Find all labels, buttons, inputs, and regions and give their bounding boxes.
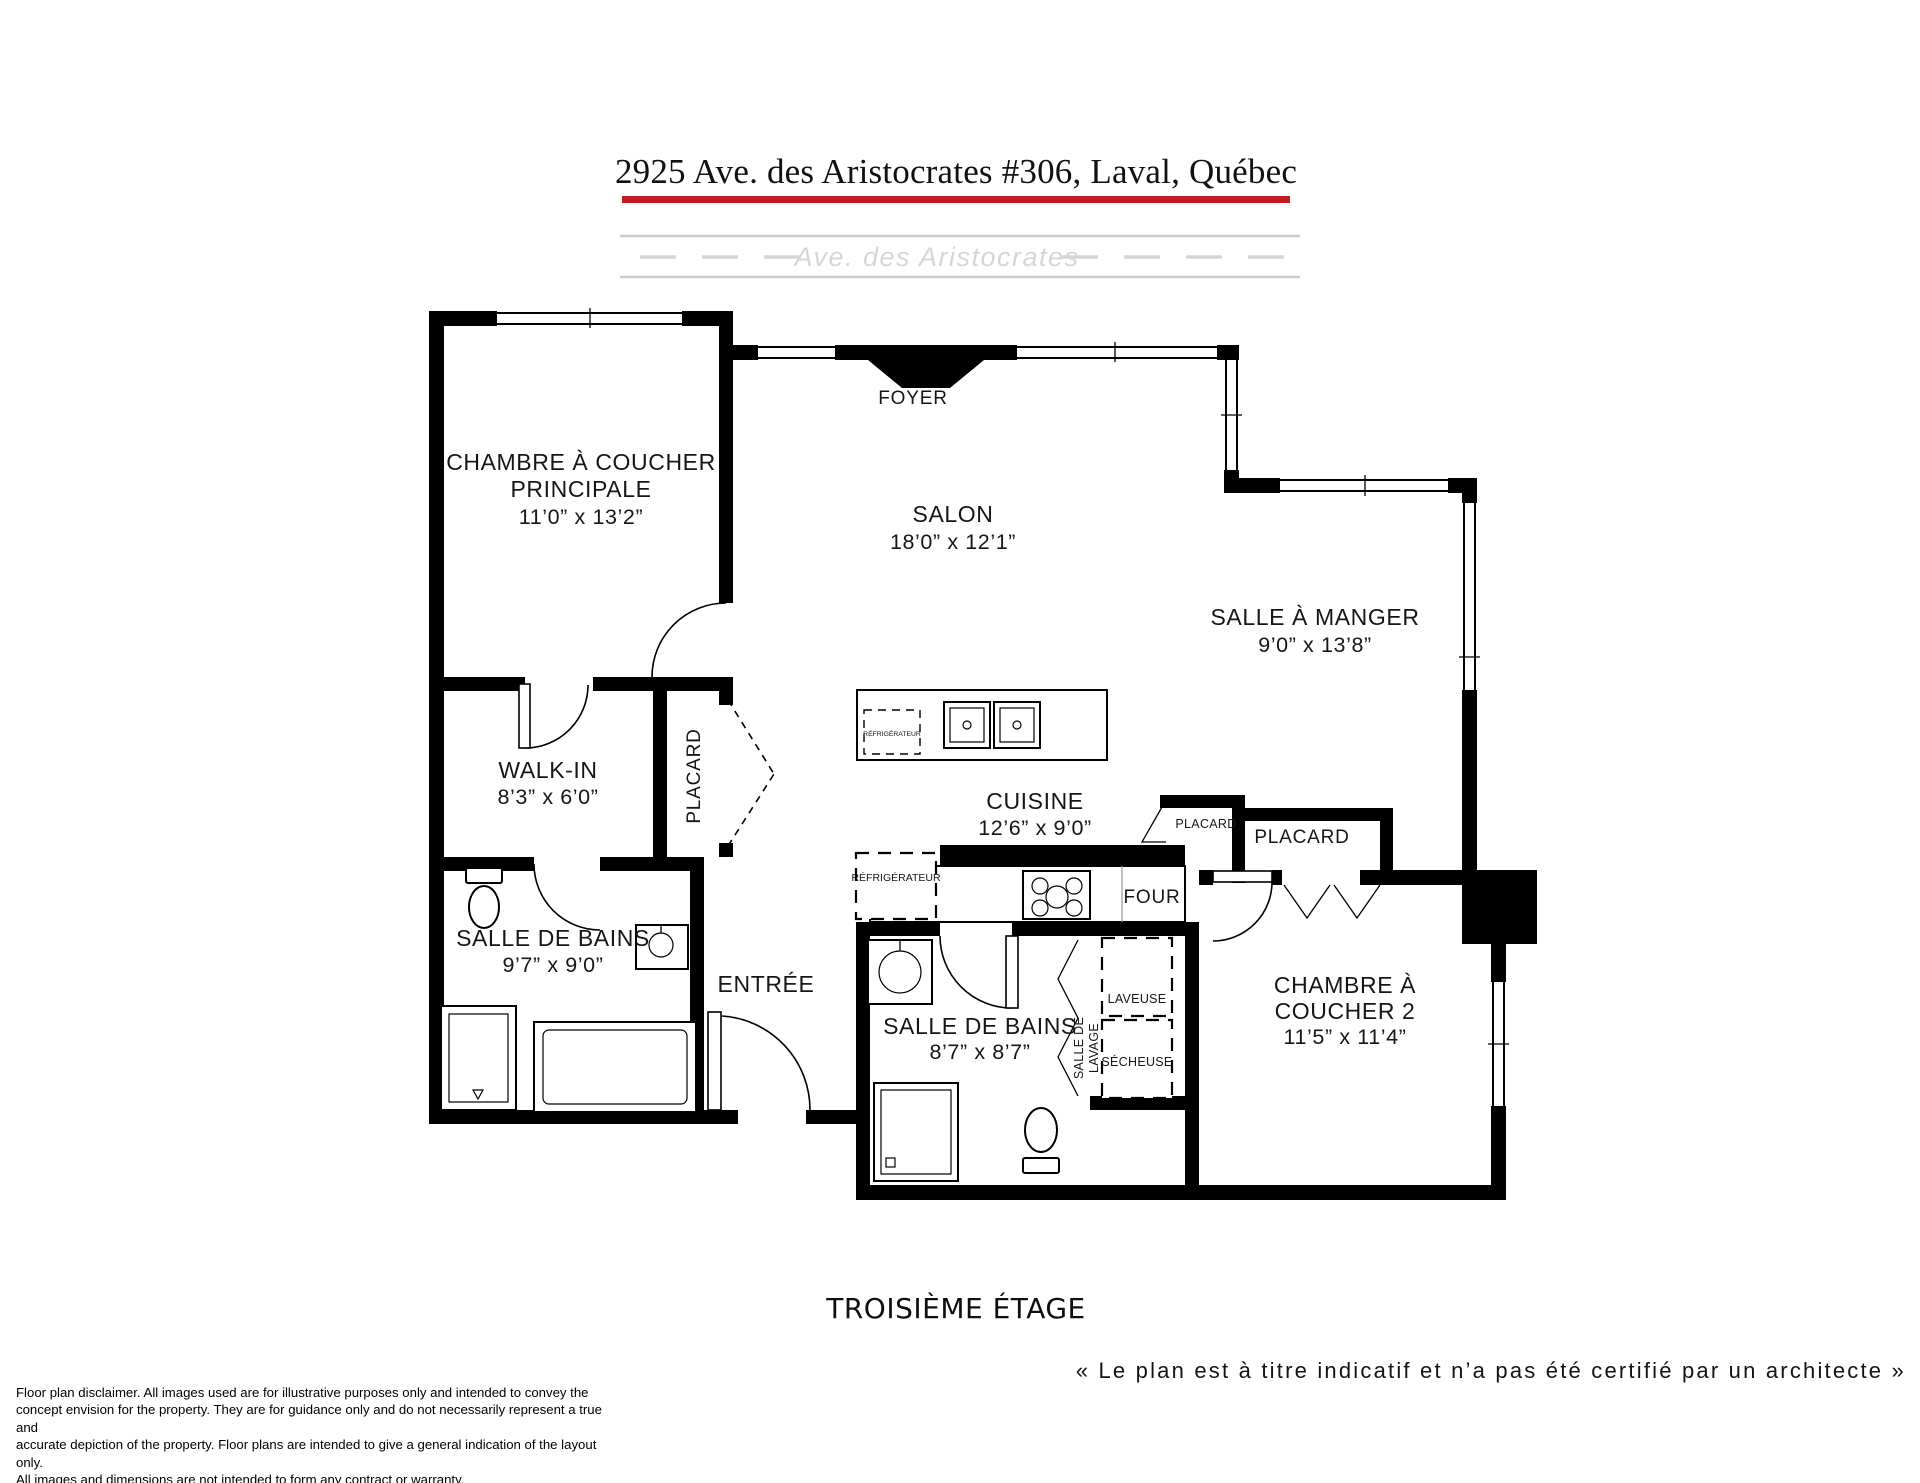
dryer-label: SÉCHEUSE [1101, 1054, 1172, 1069]
door-arc-entrance [722, 1016, 810, 1110]
label-entree: ENTRÉE [718, 971, 815, 997]
label-cuisine: CUISINE [986, 788, 1084, 814]
label-dining: SALLE À MANGER [1210, 604, 1419, 630]
disclaimer-line: Floor plan disclaimer. All images used a… [16, 1384, 616, 1401]
dims-walkin: 8’3” x 6’0” [498, 785, 599, 809]
oven-label: FOUR [1123, 887, 1180, 908]
shower-icon-bath1 [441, 1006, 516, 1110]
toilet-icon-bath2 [1023, 1108, 1059, 1173]
street-road: Ave. des Aristocrates [620, 236, 1300, 277]
fridge-box [856, 853, 936, 919]
door-arc-bath1 [534, 864, 600, 930]
label-foyer: FOYER [878, 388, 947, 409]
label-placard-small: PLACARD [1175, 817, 1236, 831]
floor-plan-disclaimer: Floor plan disclaimer. All images used a… [16, 1384, 616, 1483]
floor-level-label: TROISIÈME ÉTAGE [0, 1292, 1912, 1325]
placard-master-door-upper [728, 700, 774, 774]
window-salon-right [1017, 342, 1217, 362]
sink-icon-bath2 [868, 940, 932, 1004]
door-leaf-bath2 [1006, 936, 1018, 1008]
label-placard-master: PLACARD [684, 728, 705, 823]
door-arc-walkin [525, 685, 588, 748]
placard-bedroom2-bifold-right [1334, 885, 1380, 918]
kitchen-island: RÉFRIGÉRATEUR [857, 690, 1107, 760]
disclaimer-line: All images and dimensions are not intend… [16, 1471, 616, 1483]
island-fridge-label: RÉFRIGÉRATEUR [863, 729, 921, 738]
fridge-label: RÉFRIGÉRATEUR [851, 871, 940, 884]
dims-salon: 18’0” x 12’1” [890, 530, 1016, 554]
placard-small-door [1142, 800, 1166, 842]
label-salon: SALON [913, 501, 994, 527]
label-placard-bedroom2: PLACARD [1254, 827, 1349, 848]
svg-text:LAVAGE: LAVAGE [1087, 1023, 1101, 1073]
svg-text:SALLE DE: SALLE DE [1072, 1017, 1086, 1079]
label-bath1: SALLE DE BAINS [456, 925, 650, 951]
disclaimer-line: concept envision for the property. They … [16, 1401, 616, 1436]
placard-master-door-lower [728, 774, 774, 846]
floor-plan-svg: Ave. des Aristocrates [0, 0, 1920, 1483]
dims-bath2: 8’7” x 8’7” [930, 1040, 1031, 1064]
architect-disclaimer-quote: « Le plan est à titre indicatif et n’a p… [1076, 1358, 1906, 1384]
dims-master: 11’0” x 13’2” [519, 505, 644, 529]
label-master-2: PRINCIPALE [510, 476, 651, 502]
label-bedroom2-2: COUCHER 2 [1275, 998, 1416, 1024]
door-arc-master [652, 603, 726, 677]
bath1-fixtures [441, 868, 696, 1112]
toilet-icon-bath1 [466, 868, 502, 928]
disclaimer-line: accurate depiction of the property. Floo… [16, 1436, 616, 1471]
dims-dining: 9’0” x 13’8” [1258, 633, 1372, 657]
window-bedroom2-side [1488, 982, 1509, 1106]
window-master-top [497, 308, 682, 328]
floor-plan-page: 2925 Ave. des Aristocrates #306, Laval, … [0, 0, 1920, 1483]
label-laundry: SALLE DE LAVAGE [1072, 1017, 1101, 1079]
window-dining-side [1459, 503, 1480, 690]
window-salon-side [1221, 360, 1242, 470]
shower-icon-bath2 [874, 1083, 958, 1181]
door-leaf-walkin [519, 684, 530, 748]
dims-bath1: 9’7” x 9’0” [503, 953, 604, 977]
door-arc-bedroom2 [1213, 882, 1272, 941]
dims-bedroom2: 11’5” x 11’4” [1284, 1025, 1407, 1049]
window-salon-left [758, 345, 835, 360]
label-walkin: WALK-IN [498, 757, 597, 783]
stove-icon [1023, 871, 1090, 919]
washer-label: LAVEUSE [1108, 992, 1167, 1006]
placard-bedroom2-bifold-left [1284, 885, 1330, 918]
window-dining-top [1280, 475, 1448, 496]
label-bath2: SALLE DE BAINS [883, 1013, 1077, 1039]
bathtub-icon [534, 1022, 696, 1112]
label-bedroom2-1: CHAMBRE À [1274, 972, 1416, 998]
dims-cuisine: 12’6” x 9’0” [978, 816, 1092, 840]
door-leaf-bedroom2 [1213, 871, 1272, 882]
street-label: Ave. des Aristocrates [792, 242, 1079, 272]
label-master-1: CHAMBRE À COUCHER [446, 449, 716, 475]
door-leaf-entrance [708, 1012, 721, 1110]
door-arc-bath2 [940, 936, 1012, 1008]
foyer-entry-mat [868, 360, 984, 388]
